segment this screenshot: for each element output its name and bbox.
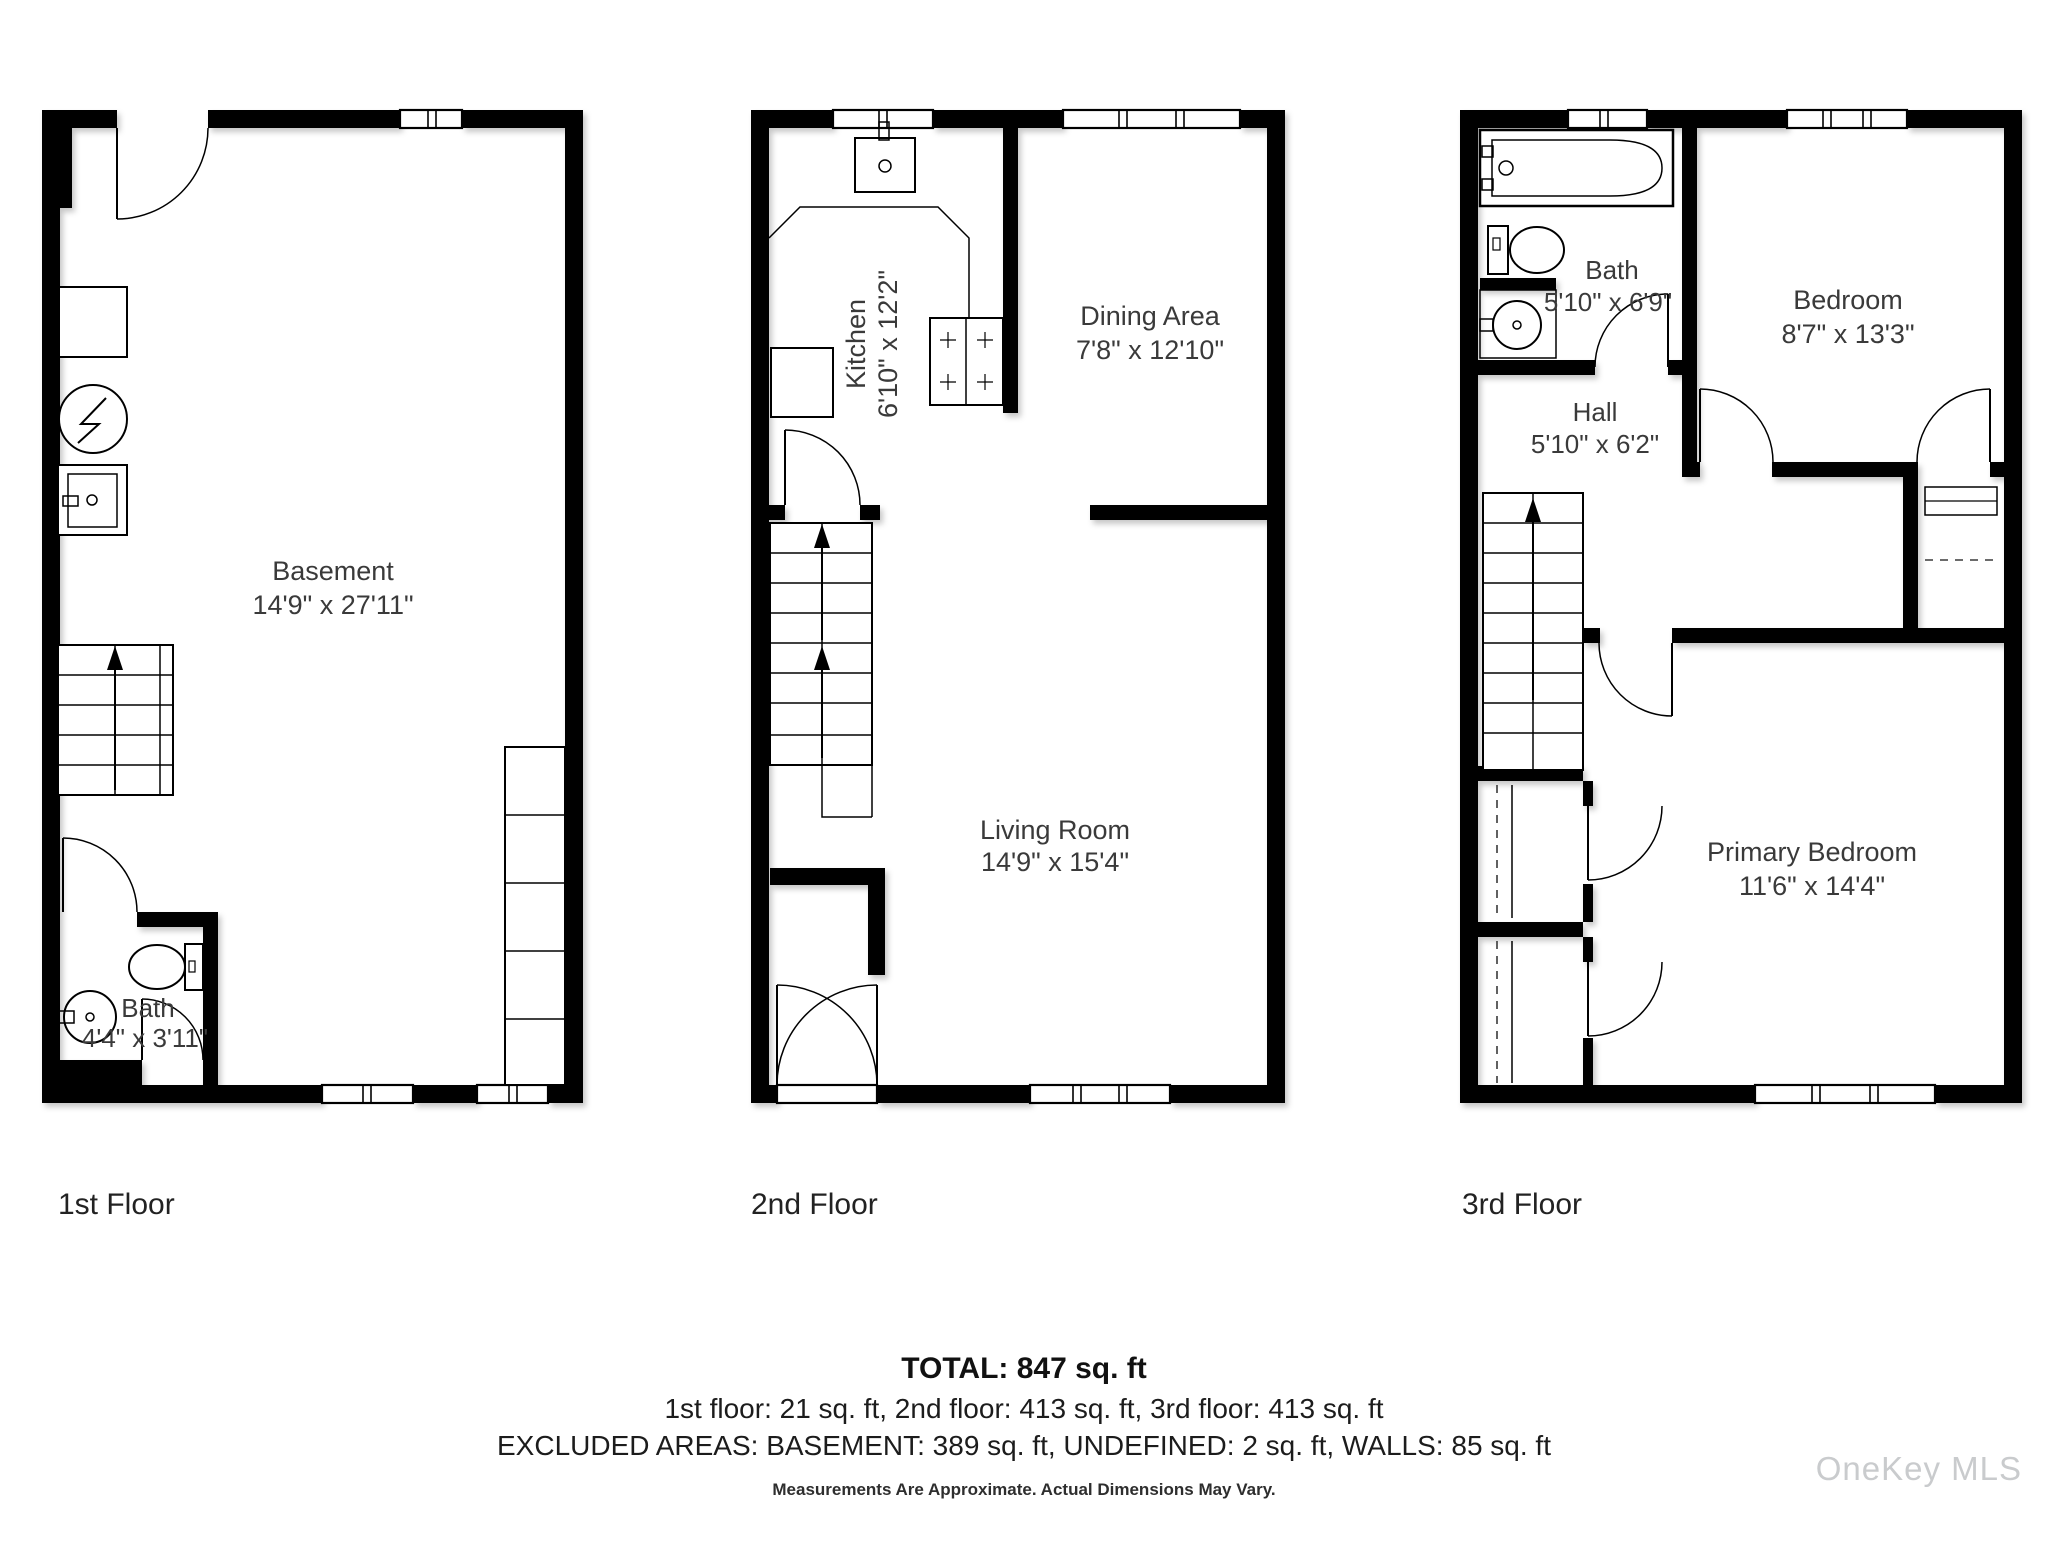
room-label: Bath xyxy=(1585,255,1639,285)
room-dims: 14'9" x 27'11" xyxy=(252,590,413,620)
floor-plan-3rd: Bath 5'10" x 6'9" Hall 5'10" x 6'2" Bedr… xyxy=(1460,110,2022,1221)
toilet xyxy=(129,944,203,990)
room-label: Kitchen xyxy=(841,299,871,389)
room-label: Hall xyxy=(1573,397,1618,427)
disclaimer: Measurements Are Approximate. Actual Dim… xyxy=(0,1480,2048,1500)
room-label: Bedroom xyxy=(1793,285,1903,315)
room-dims: 8'7" x 13'3" xyxy=(1781,319,1914,349)
stairs-up xyxy=(58,645,173,795)
room-dims: 5'10" x 6'9" xyxy=(1544,287,1672,317)
storage-shelves xyxy=(505,747,565,1085)
room-dims: 5'10" x 6'2" xyxy=(1531,429,1659,459)
floor-caption: 1st Floor xyxy=(58,1188,175,1221)
footer-summary: TOTAL: 847 sq. ft 1st floor: 21 sq. ft, … xyxy=(0,1352,2048,1500)
floor-caption: 3rd Floor xyxy=(1462,1188,1582,1221)
stairs-up xyxy=(770,523,872,817)
bathtub xyxy=(1480,130,1673,206)
room-dims: 6'10" x 12'2" xyxy=(873,270,903,418)
floor-plan-1st: Basement 14'9" x 27'11" Bath 4'4" x 3'11… xyxy=(42,110,583,1221)
room-dims: 11'6" x 14'4" xyxy=(1739,871,1885,901)
room-dims: 7'8" x 12'10" xyxy=(1076,335,1224,365)
appliance-box xyxy=(59,287,127,357)
stairs-up xyxy=(1483,493,1583,770)
door-swing xyxy=(1588,294,1990,1036)
hall-closet xyxy=(1925,487,1997,560)
stove xyxy=(930,318,1003,405)
kitchen-sink xyxy=(855,122,915,192)
entry-threshold xyxy=(777,1085,877,1103)
floor-plan-2nd: Kitchen 6'10" x 12'2" Dining Area 7'8" x… xyxy=(751,110,1285,1221)
floor-caption: 2nd Floor xyxy=(751,1188,878,1221)
total-area: TOTAL: 847 sq. ft xyxy=(0,1352,2048,1386)
onekey-mls-watermark: OneKey MLS xyxy=(1816,1450,2022,1488)
room-label: Bath xyxy=(121,993,175,1023)
excluded-areas: EXCLUDED AREAS: BASEMENT: 389 sq. ft, UN… xyxy=(0,1430,2048,1462)
room-dims: 14'9" x 15'4" xyxy=(981,847,1129,877)
toilet xyxy=(1488,226,1564,274)
room-label: Primary Bedroom xyxy=(1707,837,1917,867)
room-label: Basement xyxy=(272,556,394,586)
per-floor-areas: 1st floor: 21 sq. ft, 2nd floor: 413 sq.… xyxy=(0,1393,2048,1425)
floorplan-sheet: Basement 14'9" x 27'11" Bath 4'4" x 3'11… xyxy=(0,0,2048,1536)
room-label: Dining Area xyxy=(1080,301,1221,331)
window xyxy=(833,110,1240,1103)
refrigerator xyxy=(771,348,833,417)
utility-sink xyxy=(58,465,127,535)
room-dims: 4'4" x 3'11" xyxy=(82,1023,208,1053)
room-label: Living Room xyxy=(980,815,1130,845)
water-heater xyxy=(59,385,127,453)
